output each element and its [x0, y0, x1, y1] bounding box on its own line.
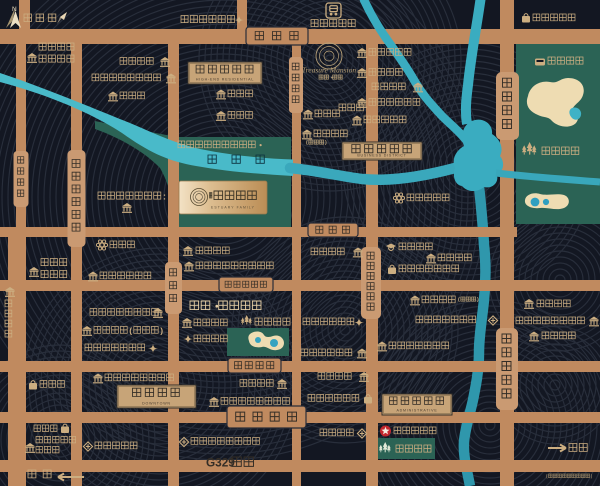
svg-text:ADMINISTRATIVE: ADMINISTRATIVE: [396, 409, 437, 413]
svg-text:): ): [325, 140, 327, 146]
svg-text:Treasure Mansion: Treasure Mansion: [302, 66, 356, 75]
svg-text:): ): [477, 297, 479, 303]
svg-text:G329: G329: [206, 456, 235, 470]
svg-text::: :: [163, 191, 166, 201]
svg-text:(: (: [306, 140, 308, 146]
svg-text:(: (: [458, 297, 460, 303]
svg-text:ESTUARY FAMILY: ESTUARY FAMILY: [211, 206, 255, 210]
svg-text:): ): [160, 325, 163, 335]
svg-text:HIGH-END RESIDENTIAL: HIGH-END RESIDENTIAL: [196, 78, 254, 82]
svg-text:(: (: [129, 325, 132, 335]
svg-text:N: N: [12, 6, 17, 13]
svg-text:BUSINESS DISTRICT: BUSINESS DISTRICT: [357, 154, 406, 158]
svg-text:DOWNTOWN: DOWNTOWN: [142, 402, 171, 406]
